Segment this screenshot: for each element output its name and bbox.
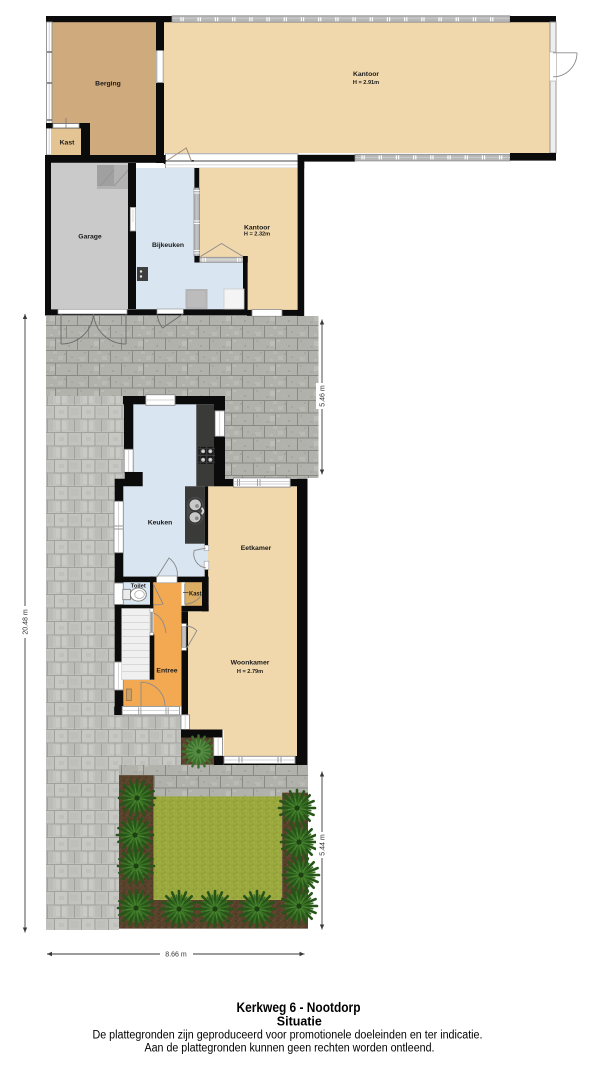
svg-text:Kantoor: Kantoor (353, 71, 379, 78)
svg-text:Kast: Kast (60, 140, 75, 147)
svg-text:Kantoor: Kantoor (244, 225, 270, 232)
svg-text:Entree: Entree (156, 668, 177, 675)
svg-text:Keuken: Keuken (148, 520, 173, 527)
svg-text:5.44 m: 5.44 m (319, 834, 326, 856)
svg-text:H = 2.32m: H = 2.32m (244, 232, 270, 238)
svg-text:Kast: Kast (189, 590, 202, 597)
svg-text:Garage: Garage (78, 234, 102, 241)
svg-text:De plattegronden zijn geproduc: De plattegronden zijn geproduceerd voor … (93, 1029, 483, 1041)
svg-text:Aan de plattegronden kunnen ge: Aan de plattegronden kunnen geen rechten… (145, 1042, 435, 1054)
svg-text:Berging: Berging (95, 81, 121, 88)
svg-text:Bijkeuken: Bijkeuken (152, 242, 184, 249)
svg-text:5.46 m: 5.46 m (319, 385, 326, 407)
svg-text:H = 2.91m: H = 2.91m (353, 80, 379, 86)
svg-text:Eetkamer: Eetkamer (241, 545, 272, 552)
svg-text:Situatie: Situatie (277, 1014, 322, 1029)
svg-text:20.48 m: 20.48 m (22, 609, 29, 634)
svg-text:Woonkamer: Woonkamer (231, 660, 270, 667)
svg-text:8.66 m: 8.66 m (165, 952, 187, 959)
svg-text:H = 2.79m: H = 2.79m (237, 669, 263, 675)
svg-text:Toilet: Toilet (131, 584, 146, 590)
